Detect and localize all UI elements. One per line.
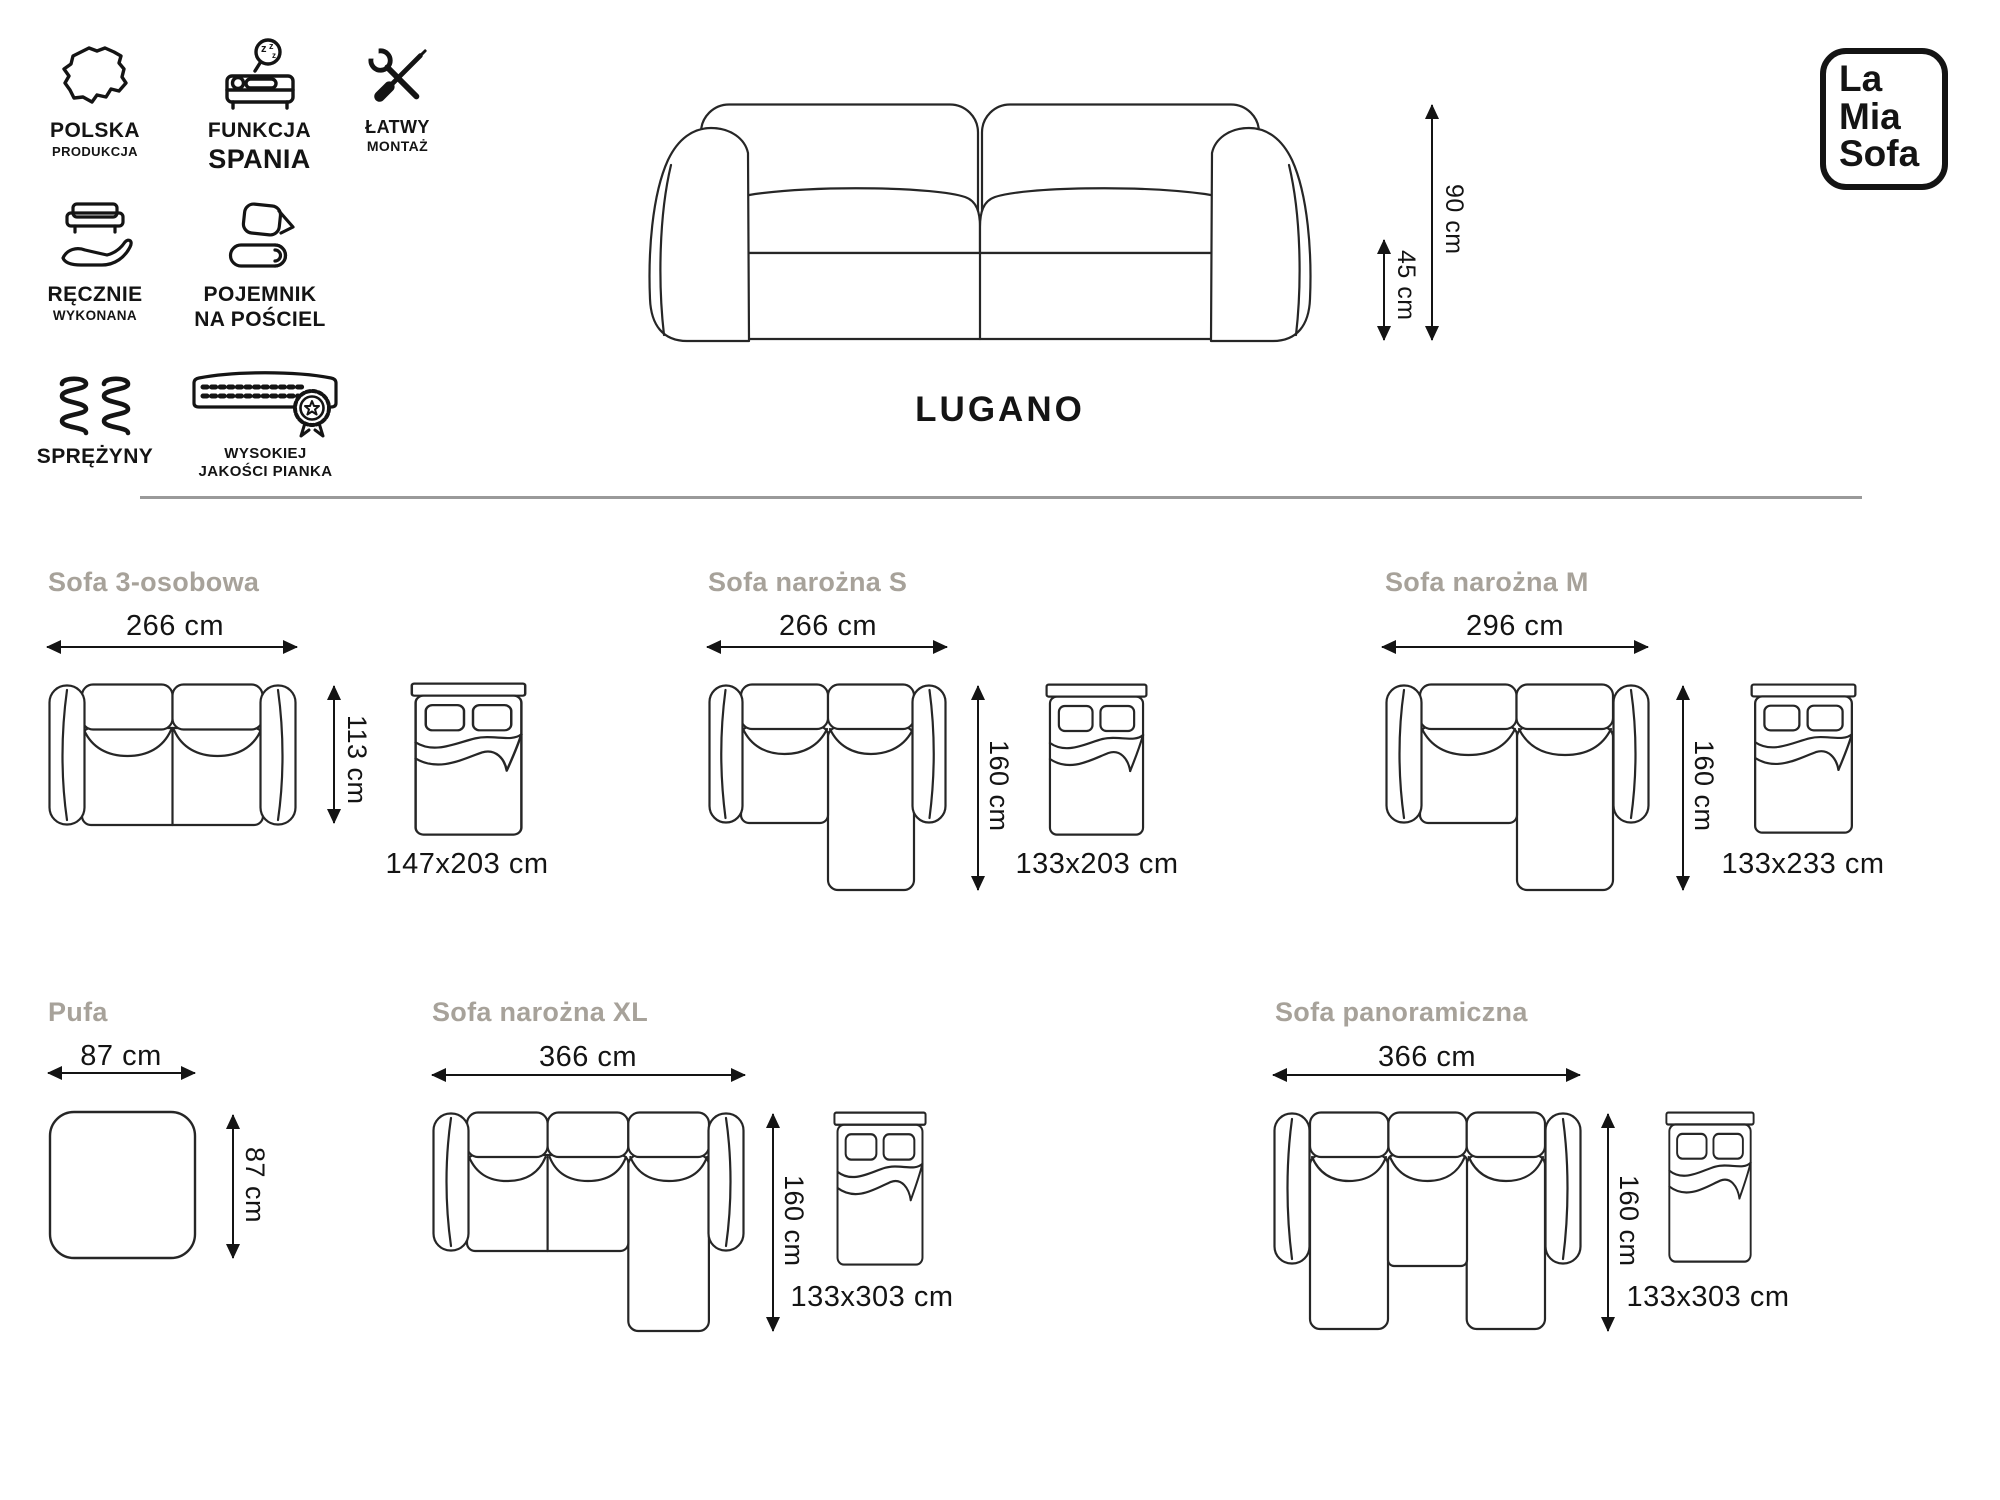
feature-label: SPANIA	[192, 144, 327, 176]
bed-icon	[1665, 1111, 1755, 1264]
height-arrow	[1431, 105, 1433, 340]
pouf-top-view	[48, 1110, 197, 1260]
bed-size-label: 133x203 cm	[997, 848, 1197, 881]
feature-label: SPRĘŻYNY	[30, 445, 160, 470]
variant-title: Pufa	[48, 997, 108, 1028]
brand-logo: La Mia Sofa	[1820, 48, 1948, 190]
seat-height-arrow	[1383, 240, 1385, 340]
depth-label: 160 cm	[1688, 740, 1719, 832]
feature-wysokiej-jakosci-pianka: WYSOKIEJ JAKOŚCI PIANKA	[178, 378, 353, 480]
width-label: 296 cm	[1415, 610, 1615, 643]
width-arrow	[1382, 646, 1648, 648]
section-sofa-panoramiczna: Sofa panoramiczna 366 cm 160 cm	[1270, 997, 1830, 1347]
features-panel: POLSKA PRODUKCJA z z z	[0, 0, 520, 500]
depth-label: 160 cm	[778, 1175, 809, 1267]
depth-label: 113 cm	[341, 715, 372, 805]
feature-label: MONTAŻ	[330, 138, 465, 155]
feature-latwy-montaz: ŁATWY MONTAŻ	[330, 44, 465, 155]
logo-line: Mia	[1839, 98, 1942, 136]
depth-arrow	[977, 686, 979, 890]
svg-text:z: z	[272, 51, 276, 60]
feature-recznie-wykonana: RĘCZNIE WYKONANA	[30, 196, 160, 324]
width-arrow	[1273, 1074, 1580, 1076]
feature-pojemnik-na-posciel: POJEMNIK NA POŚCIEL	[190, 196, 330, 333]
sofa-top-view	[1273, 1111, 1582, 1331]
depth-arrow	[1682, 686, 1684, 890]
width-arrow	[432, 1074, 745, 1076]
bed-size-label: 147x203 cm	[367, 848, 567, 881]
bed-icon	[1045, 683, 1148, 837]
sofa-top-view	[1385, 683, 1650, 892]
spec-sheet: POLSKA PRODUKCJA z z z	[0, 0, 2000, 1500]
section-sofa-narozna-m: Sofa narożna M 296 cm 160 cm	[1360, 567, 1920, 907]
variant-title: Sofa narożna S	[708, 567, 907, 598]
feature-polska-produkcja: POLSKA PRODUKCJA	[30, 40, 160, 159]
width-arrow	[707, 646, 947, 648]
bed-icon	[410, 682, 527, 837]
sleeping-person-sofa-icon: z z z	[192, 40, 327, 112]
depth-label: 87 cm	[239, 1147, 270, 1223]
foam-mattress-badge-icon	[178, 378, 353, 438]
springs-icon	[30, 374, 160, 438]
section-sofa-3-osobowa: Sofa 3-osobowa 266 cm 113 cm	[40, 567, 580, 897]
depth-label: 160 cm	[983, 740, 1014, 832]
feature-label: JAKOŚCI PIANKA	[178, 463, 353, 481]
feature-label: FUNKCJA	[192, 119, 327, 144]
bed-size-label: 133x303 cm	[772, 1281, 972, 1314]
feature-label: PRODUKCJA	[30, 144, 160, 159]
sofa-top-view	[48, 683, 297, 827]
width-label: 266 cm	[728, 610, 928, 643]
seat-height-label: 45 cm	[1391, 250, 1420, 321]
hero-sofa-illustration	[643, 103, 1317, 343]
logo-line: La	[1839, 60, 1942, 98]
feature-label: WYKONANA	[30, 308, 160, 324]
feature-sprezyny: SPRĘŻYNY	[30, 374, 160, 470]
bed-icon	[833, 1111, 927, 1267]
divider-line	[140, 496, 1862, 499]
feature-label: ŁATWY	[330, 117, 465, 138]
width-label: 366 cm	[488, 1041, 688, 1074]
feature-funkcja-spania: z z z FUNKCJA SPANIA	[192, 40, 327, 176]
width-label: 87 cm	[41, 1040, 201, 1073]
feature-label: RĘCZNIE	[30, 283, 160, 308]
sofa-on-hand-icon	[30, 196, 160, 276]
bed-size-label: 133x303 cm	[1608, 1281, 1808, 1314]
depth-arrow	[333, 686, 335, 823]
section-pufa: Pufa 87 cm 87 cm	[40, 997, 340, 1327]
wrench-screwdriver-icon	[330, 44, 465, 110]
feature-label: POJEMNIK	[190, 283, 330, 308]
logo-line: Sofa	[1839, 135, 1942, 173]
sofa-top-view	[432, 1111, 745, 1333]
width-label: 266 cm	[75, 610, 275, 643]
feature-label: POLSKA	[30, 119, 160, 144]
variant-title: Sofa narożna XL	[432, 997, 648, 1028]
width-label: 366 cm	[1327, 1041, 1527, 1074]
variant-title: Sofa narożna M	[1385, 567, 1589, 598]
model-name: LUGANO	[850, 390, 1150, 430]
variant-title: Sofa panoramiczna	[1275, 997, 1528, 1028]
section-sofa-narozna-s: Sofa narożna S 266 cm 160 cm	[680, 567, 1220, 907]
variant-title: Sofa 3-osobowa	[48, 567, 259, 598]
section-sofa-narozna-xl: Sofa narożna XL 366 cm 160 cm	[420, 997, 980, 1347]
bed-size-label: 133x233 cm	[1703, 848, 1903, 881]
height-label: 90 cm	[1439, 184, 1468, 255]
bedding-storage-icon	[190, 196, 330, 276]
width-arrow	[47, 646, 297, 648]
bed-icon	[1750, 683, 1857, 835]
feature-label: WYSOKIEJ	[178, 445, 353, 463]
sofa-top-view	[708, 683, 947, 892]
width-arrow	[48, 1072, 195, 1074]
depth-arrow	[232, 1115, 234, 1258]
feature-label: NA POŚCIEL	[190, 308, 330, 333]
svg-text:z: z	[269, 41, 274, 51]
poland-map-icon	[30, 40, 160, 112]
depth-label: 160 cm	[1613, 1175, 1644, 1267]
svg-text:z: z	[261, 43, 267, 55]
